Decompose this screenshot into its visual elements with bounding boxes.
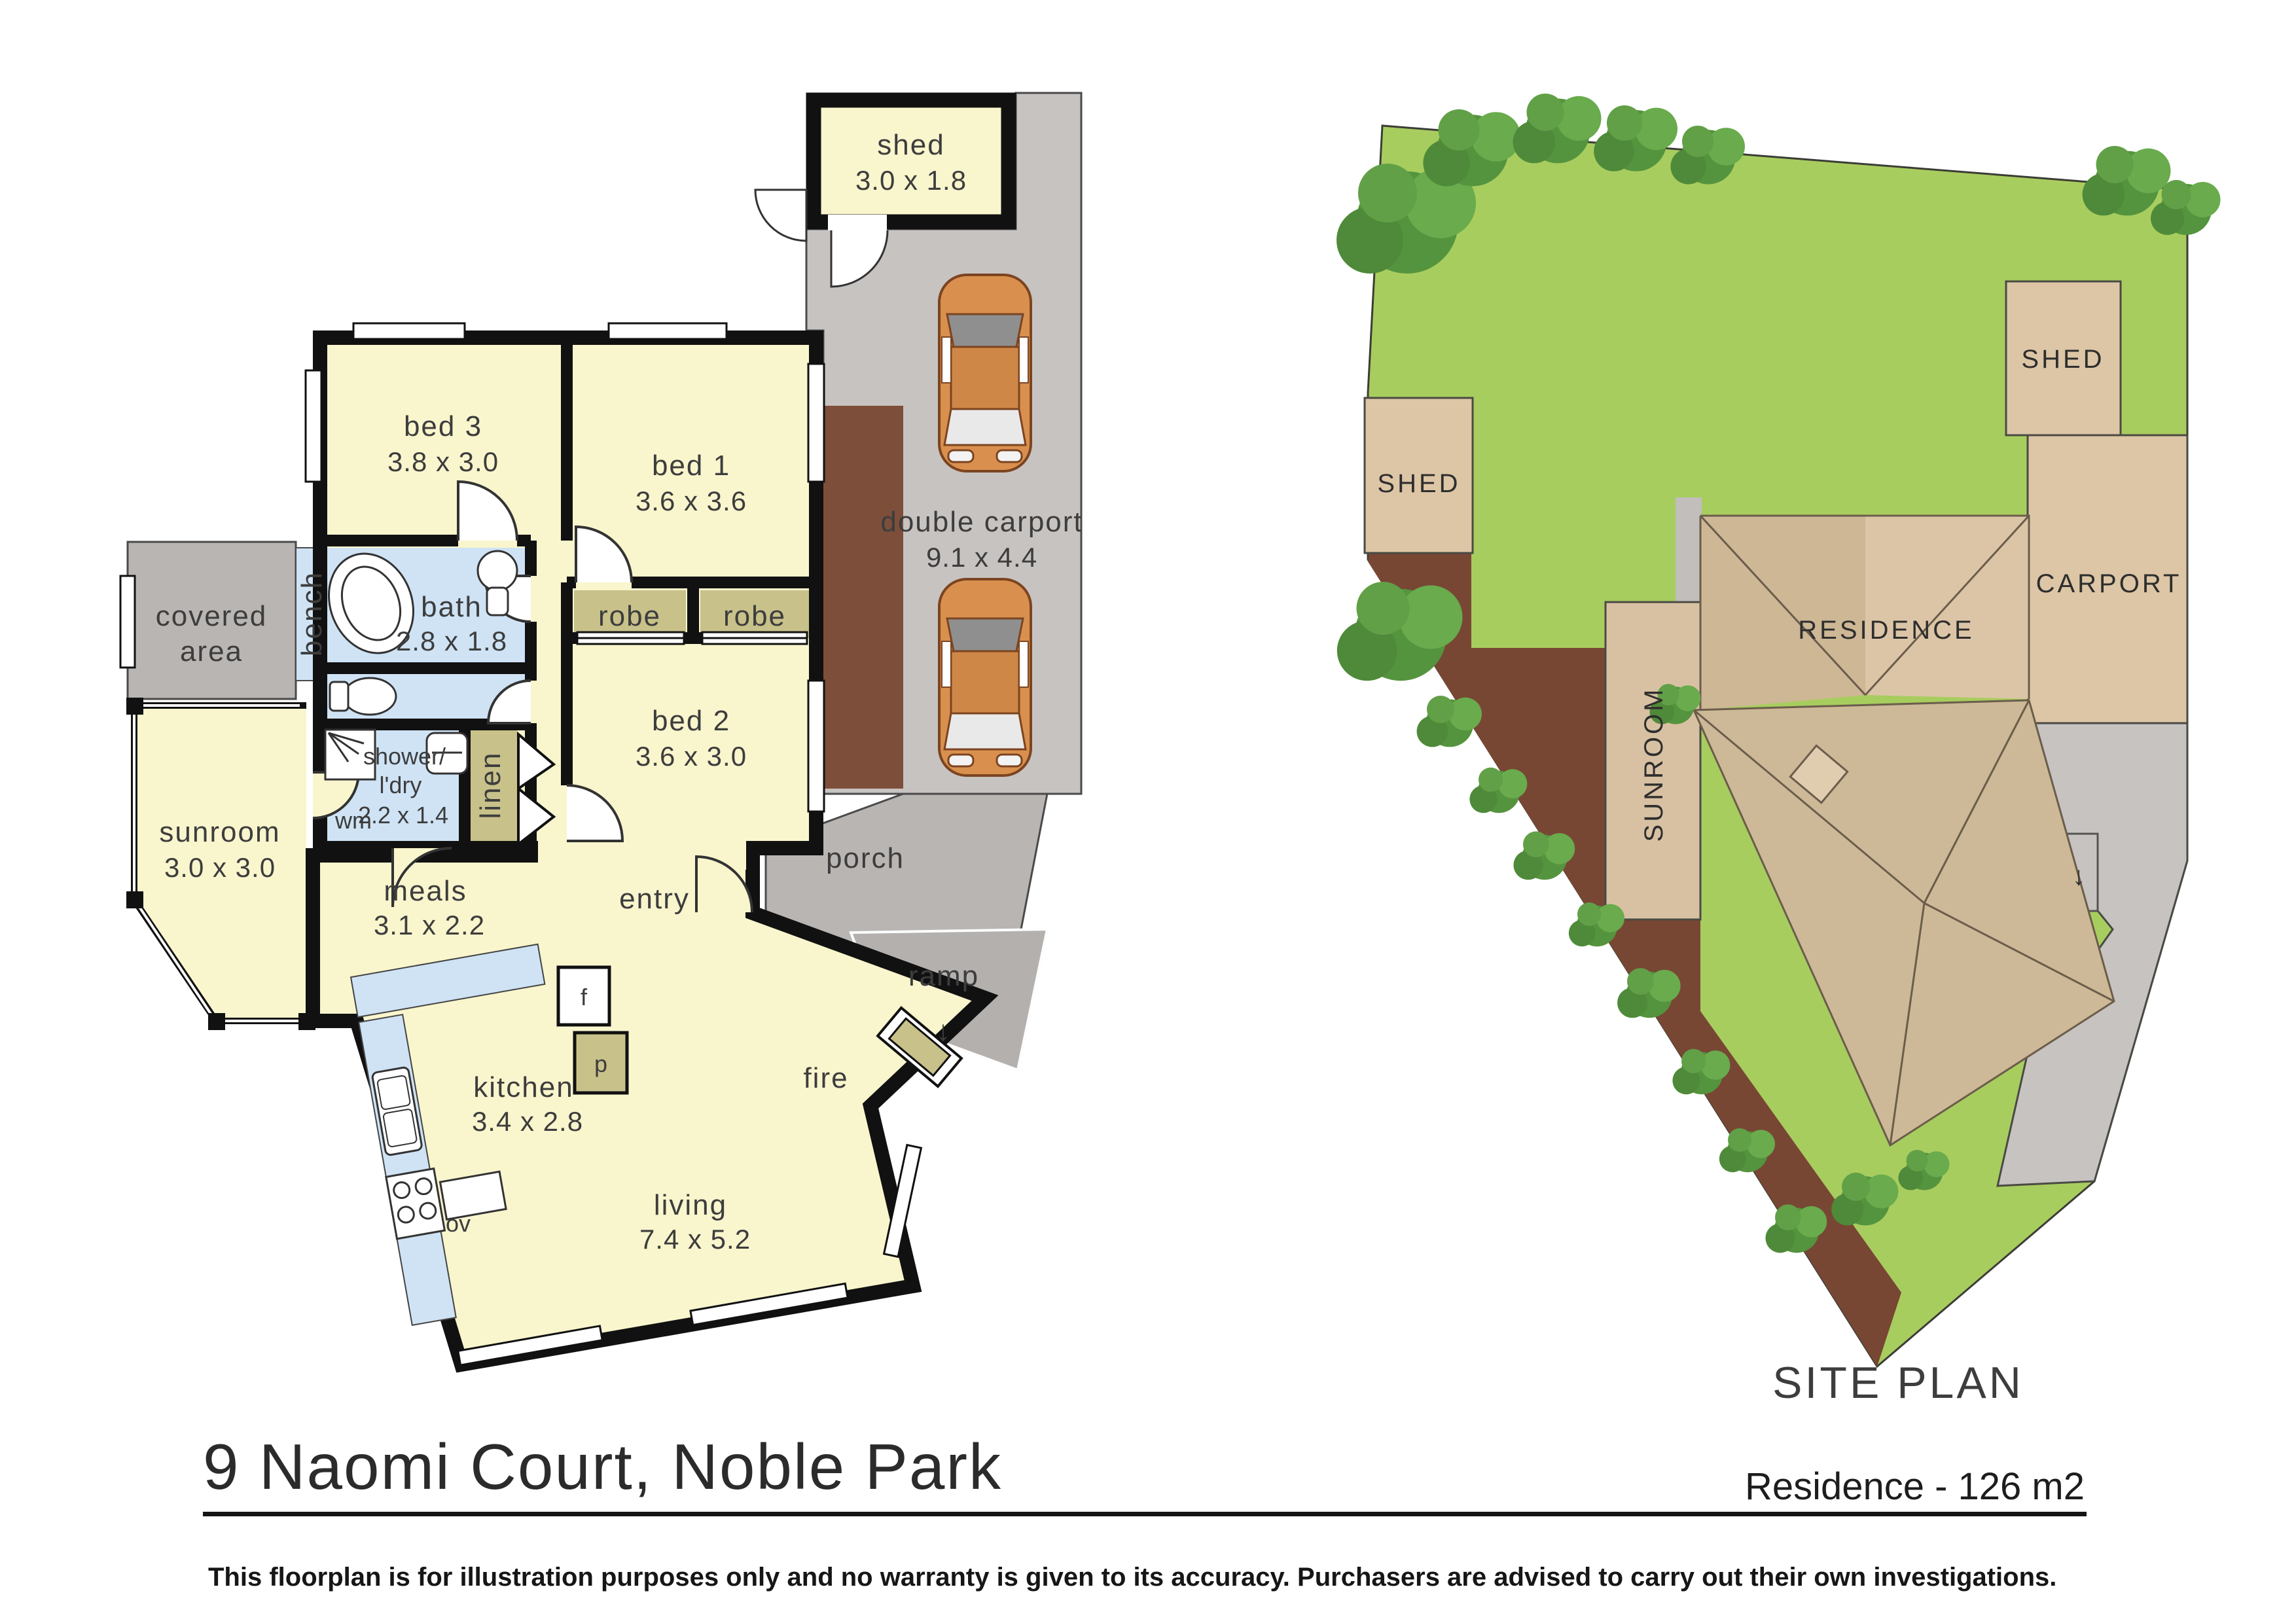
wm-label: wm xyxy=(334,807,372,834)
meals-dims: 3.1 x 2.2 xyxy=(374,910,485,940)
covered-label-2: area xyxy=(180,635,243,668)
porch-label: porch xyxy=(826,842,905,874)
site-residence-label: RESIDENCE xyxy=(1798,616,1974,645)
pantry-label: p xyxy=(594,1050,607,1077)
bed3-dims: 3.8 x 3.0 xyxy=(387,446,499,477)
drive-arrow: ↓ xyxy=(2072,862,2088,891)
fridge-label: f xyxy=(581,984,588,1010)
site-plan-title: SITE PLAN xyxy=(1772,1358,2024,1408)
shed-room xyxy=(814,100,1009,222)
bath-dims: 2.8 x 1.8 xyxy=(396,626,507,656)
site-plan: SHED SHED CARPORT RESIDENCE SUNROOM ↓ SI… xyxy=(1336,94,2221,1408)
bed2-dims: 3.6 x 3.0 xyxy=(636,741,747,772)
ramp-label: ramp xyxy=(908,960,979,992)
garden-strip xyxy=(823,406,903,789)
roof-facet-left xyxy=(1700,516,1865,710)
floorplan: shed 3.0 x 1.8 double carport 9.1 x 4.4 … xyxy=(120,93,1083,1365)
linen-label: linen xyxy=(475,752,507,819)
oven-label: ov xyxy=(446,1210,471,1237)
car-1 xyxy=(939,275,1031,471)
bath-label: bath xyxy=(421,591,482,623)
bed2-label: bed 2 xyxy=(652,705,730,737)
carport-label: double carport xyxy=(880,506,1083,538)
disclaimer-text: This floorplan is for illustration purpo… xyxy=(208,1563,2172,1592)
site-carport-label: CARPORT xyxy=(2036,569,2182,598)
bed3-label: bed 3 xyxy=(404,410,482,442)
robe-right-label: robe xyxy=(723,600,786,632)
site-shed-left-label: SHED xyxy=(1377,469,1460,498)
floorplan-sheet: shed 3.0 x 1.8 double carport 9.1 x 4.4 … xyxy=(0,0,2296,1623)
meals-label: meals xyxy=(384,875,467,907)
shed-label: shed xyxy=(877,129,944,161)
laundry-label-1: shower/ xyxy=(363,743,446,770)
site-shed-right-label: SHED xyxy=(2021,345,2104,374)
carport-door-arc xyxy=(755,190,806,241)
laundry-label-2: l'dry xyxy=(380,772,422,798)
sunroom-dims: 3.0 x 3.0 xyxy=(164,852,276,883)
divider-rule xyxy=(203,1512,2087,1516)
kitchen-dims: 3.4 x 2.8 xyxy=(472,1106,583,1137)
bed1-label: bed 1 xyxy=(652,450,730,482)
sunroom-label: sunroom xyxy=(159,816,280,848)
kitchen-label: kitchen xyxy=(473,1071,573,1103)
plan-canvas: shed 3.0 x 1.8 double carport 9.1 x 4.4 … xyxy=(0,0,2296,1623)
carport-dims: 9.1 x 4.4 xyxy=(926,542,1037,573)
covered-label-1: covered xyxy=(156,600,268,632)
living-label: living xyxy=(654,1189,727,1221)
car-2 xyxy=(939,579,1031,776)
robe-left-label: robe xyxy=(598,600,661,632)
entry-label: entry xyxy=(619,883,690,915)
fire-label: fire xyxy=(803,1062,848,1094)
site-sunroom-label: SUNROOM xyxy=(1640,687,1668,842)
shed-door-gap xyxy=(828,215,887,230)
ramp-arrow: ↓ xyxy=(936,1015,952,1047)
bench-label: bench xyxy=(296,571,328,656)
living-dims: 7.4 x 5.2 xyxy=(639,1224,751,1255)
site-path xyxy=(1676,497,1702,602)
bed1-dims: 3.6 x 3.6 xyxy=(636,486,747,516)
area-note: Residence - 126 m2 xyxy=(1745,1465,2085,1508)
shed-dims: 3.0 x 1.8 xyxy=(855,165,967,196)
